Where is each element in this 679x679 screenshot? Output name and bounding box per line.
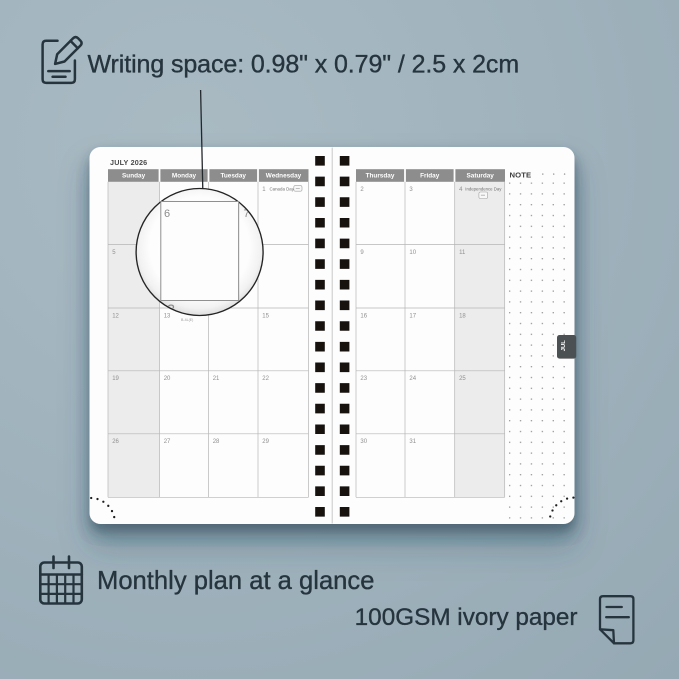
svg-text:17: 17 — [409, 313, 416, 319]
svg-text:B-4L(E): B-4L(E) — [181, 318, 193, 322]
svg-text:16: 16 — [360, 313, 367, 319]
svg-text:Tuesday: Tuesday — [220, 173, 246, 180]
svg-text:19: 19 — [112, 376, 119, 382]
svg-text:18: 18 — [459, 313, 466, 319]
svg-text:28: 28 — [213, 439, 220, 445]
svg-text:15: 15 — [262, 313, 269, 319]
svg-text:Friday: Friday — [420, 173, 440, 180]
svg-text:24: 24 — [409, 376, 416, 382]
svg-text:Sunday: Sunday — [122, 173, 146, 180]
svg-text:Canada Day: Canada Day — [270, 186, 295, 191]
svg-text:29: 29 — [262, 439, 269, 445]
svg-text:12: 12 — [112, 313, 119, 319]
svg-text:10: 10 — [409, 250, 416, 256]
svg-text:JUL: JUL — [561, 340, 567, 352]
svg-text:Saturday: Saturday — [467, 173, 495, 180]
svg-text:27: 27 — [164, 439, 171, 445]
svg-text:30: 30 — [360, 439, 367, 445]
svg-text:11: 11 — [459, 250, 466, 256]
svg-text:21: 21 — [213, 376, 220, 382]
svg-text:25: 25 — [459, 376, 466, 382]
svg-text:Monthly plan at a glance: Monthly plan at a glance — [97, 567, 374, 595]
svg-text:22: 22 — [262, 376, 269, 382]
svg-text:Monday: Monday — [172, 173, 197, 180]
svg-text:Thursday: Thursday — [366, 173, 395, 180]
svg-text:JULY 2026: JULY 2026 — [110, 158, 147, 167]
svg-text:13: 13 — [164, 313, 171, 319]
svg-text:6: 6 — [164, 208, 170, 220]
svg-text:31: 31 — [409, 439, 416, 445]
svg-text:Independence Day: Independence Day — [465, 186, 502, 191]
svg-text:NOTE: NOTE — [510, 170, 532, 179]
svg-text:20: 20 — [164, 376, 171, 382]
svg-text:23: 23 — [360, 376, 367, 382]
svg-text:100GSM ivory paper: 100GSM ivory paper — [355, 604, 578, 631]
svg-text:Wednesday: Wednesday — [266, 173, 302, 180]
svg-text:26: 26 — [112, 439, 119, 445]
svg-text:Writing space: 0.98" x 0.79" /: Writing space: 0.98" x 0.79" / 2.5 x 2cm — [88, 51, 520, 79]
